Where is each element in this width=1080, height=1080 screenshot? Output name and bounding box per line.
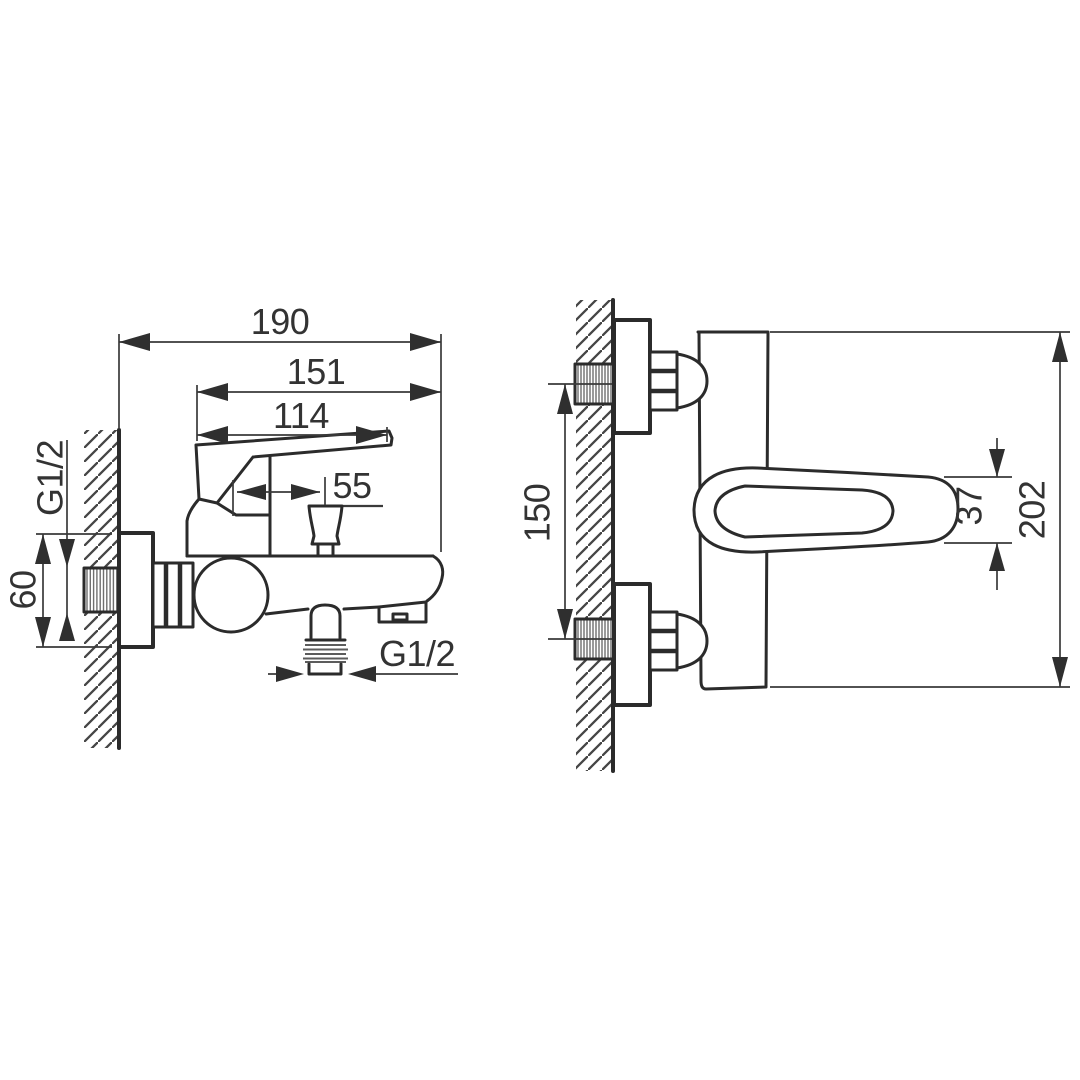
dim-label-202: 202 xyxy=(1012,481,1053,540)
dim-inlet-thread: G1/2 xyxy=(30,440,75,641)
escutcheon-plate xyxy=(119,533,153,647)
dim-lever-thickness: 37 xyxy=(944,438,1012,590)
dim-label-outlet-thread: G1/2 xyxy=(379,633,455,674)
top-escutcheon xyxy=(614,320,650,433)
bottom-escutcheon xyxy=(614,584,650,705)
body-elbow-circle xyxy=(194,558,268,632)
dim-label-151: 151 xyxy=(287,351,346,392)
dim-label-60: 60 xyxy=(3,570,44,609)
diverter-knob xyxy=(309,506,342,544)
dim-label-inlet-thread: G1/2 xyxy=(30,440,71,516)
dim-label-150: 150 xyxy=(517,484,558,543)
dim-label-37: 37 xyxy=(949,486,990,525)
dim-label-190: 190 xyxy=(251,301,310,342)
technical-drawing: 190 151 114 55 G1/2 xyxy=(0,0,1080,1080)
side-view: 190 151 114 55 G1/2 xyxy=(3,301,458,748)
bottom-nut xyxy=(650,612,677,670)
dim-label-114: 114 xyxy=(273,395,329,436)
spout-tip xyxy=(427,556,443,601)
drawing-canvas: 190 151 114 55 G1/2 xyxy=(0,0,1080,1080)
connection-nut xyxy=(153,563,193,627)
dim-diverter-offset: 55 xyxy=(233,465,372,516)
dim-label-55: 55 xyxy=(332,465,371,506)
lever-handle-front xyxy=(694,468,958,552)
handle-neck-flare xyxy=(187,499,199,556)
outlet-threads xyxy=(303,645,348,662)
diverter-stem xyxy=(318,544,333,556)
outlet-dome xyxy=(311,605,340,638)
top-nut xyxy=(650,352,677,410)
front-view: 150 37 202 xyxy=(517,300,1070,771)
dim-outlet-thread: G1/2 xyxy=(268,633,458,682)
outlet-end xyxy=(309,664,341,674)
body-underside xyxy=(266,607,379,614)
